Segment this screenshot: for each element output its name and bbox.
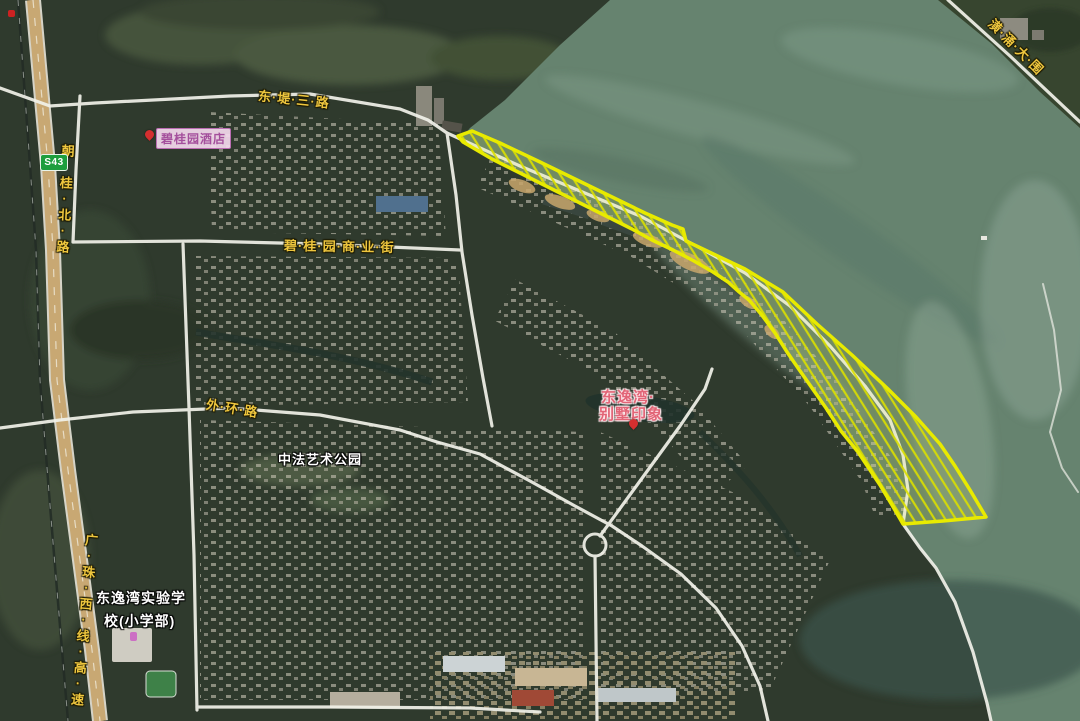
map-base [0, 0, 1080, 721]
road-roundabout-s [595, 556, 597, 721]
satellite-map[interactable]: 东·堤·三·路 碧·桂·园·商·业·街 外·环·路 朝·桂·北·路 广·珠·西·… [0, 0, 1080, 721]
expressway-shield-s43: S43 [40, 154, 68, 171]
boat [981, 236, 987, 240]
school-poi-dot [130, 632, 137, 641]
sports-field [146, 671, 176, 697]
small-red-marker [8, 10, 15, 17]
